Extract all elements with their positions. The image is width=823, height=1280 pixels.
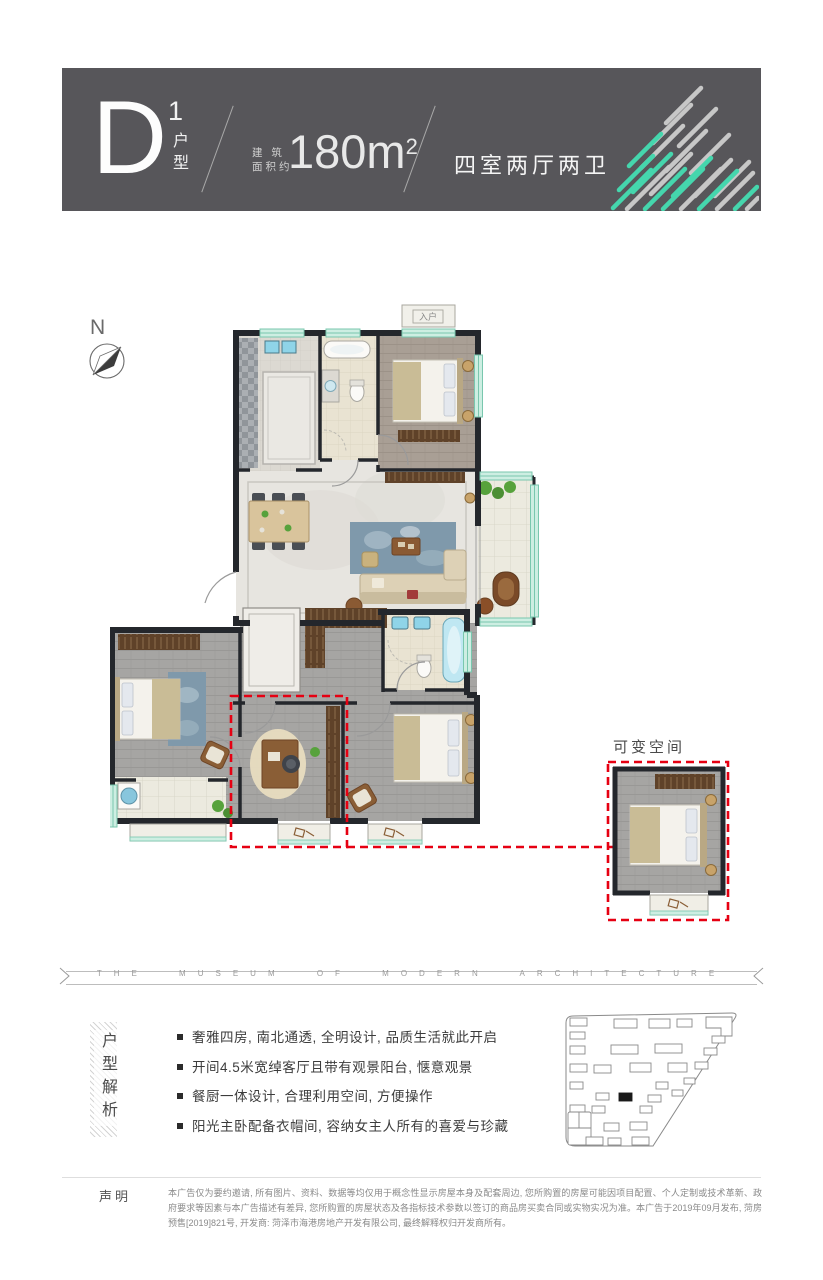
disclaimer-text: 本广告仅为要约邀请, 所有图片、资料、数据等均仅用于概念性显示房屋本身及配套周边… <box>168 1186 762 1231</box>
analysis-title: 户型解析 <box>94 1030 120 1126</box>
variable-space-label: 可变空间 <box>613 739 685 756</box>
bullet-text: 开间4.5米宽绰客厅且带有观景阳台, 惬意观景 <box>192 1060 473 1075</box>
variable-space-plan: 可变空间 <box>608 739 728 920</box>
analysis-bullets: 奢雅四房, 南北通透, 全明设计, 品质生活就此开启 开间4.5米宽绰客厅且带有… <box>177 1026 557 1144</box>
study-bookshelf <box>326 706 340 818</box>
bedroom1-dresser <box>398 430 460 442</box>
area-caption-line1: 建 筑 <box>252 147 285 159</box>
unit-number: 1 <box>168 96 183 127</box>
area-caption-line2: 面积约 <box>252 161 293 173</box>
page: D 1 户型 建 筑面积约 180m2 四室两厅两卫 N <box>0 0 823 1280</box>
area-caption: 建 筑面积约 <box>252 146 293 174</box>
bay-windows <box>130 824 422 844</box>
bullet-square-icon <box>177 1034 183 1040</box>
unit-type-label: 户型 <box>166 132 190 176</box>
site-plan <box>556 1006 764 1156</box>
bullet-square-icon <box>177 1093 183 1099</box>
hall-wardrobe <box>305 608 325 668</box>
floor-plan: 入户 可变空间 <box>110 300 770 950</box>
ribbon-line-bottom <box>66 984 757 985</box>
divider-slash <box>201 106 233 193</box>
unit-letter: D <box>92 86 167 190</box>
bullet-square-icon <box>177 1064 183 1070</box>
header-banner: D 1 户型 建 筑面积约 180m2 四室两厅两卫 <box>62 68 761 211</box>
room-floors <box>112 333 534 821</box>
dining-set <box>249 493 309 550</box>
area-value: 180m2 <box>288 124 418 179</box>
tv-console <box>385 472 465 483</box>
bullet-text: 奢雅四房, 南北通透, 全明设计, 品质生活就此开启 <box>192 1030 498 1045</box>
highlighted-building <box>619 1093 632 1101</box>
master-closet <box>118 634 200 650</box>
room-layout-text: 四室两厅两卫 <box>454 148 610 180</box>
north-label: N <box>90 316 106 340</box>
area-number: 180m <box>288 125 406 178</box>
bullet-text: 阳光主卧配备衣帽间, 容纳女主人所有的喜爱与珍藏 <box>192 1119 509 1134</box>
disclaimer-label: 声明 <box>99 1186 131 1205</box>
entry-label: 入户 <box>419 311 437 322</box>
ribbon-chevron-left-icon <box>59 967 71 985</box>
site-buildings <box>568 1017 732 1145</box>
bullet-item: 奢雅四房, 南北通透, 全明设计, 品质生活就此开启 <box>177 1026 557 1056</box>
bullet-item: 餐厨一体设计, 合理利用空间, 方便操作 <box>177 1085 557 1115</box>
entry-platform: 入户 <box>402 305 455 327</box>
ribbon-banner: THE MUSEUM OF MODERN ARCHITECTURE <box>62 964 761 988</box>
ribbon-chevron-right-icon <box>752 967 764 985</box>
bullet-square-icon <box>177 1123 183 1129</box>
bullet-item: 阳光主卧配备衣帽间, 容纳女主人所有的喜爱与珍藏 <box>177 1115 557 1145</box>
bullet-item: 开间4.5米宽绰客厅且带有观景阳台, 惬意观景 <box>177 1056 557 1086</box>
bullet-text: 餐厨一体设计, 合理利用空间, 方便操作 <box>192 1089 433 1104</box>
ribbon-text: THE MUSEUM OF MODERN ARCHITECTURE <box>62 969 761 978</box>
variable-wardrobe <box>655 774 715 789</box>
diagonal-stripes-decoration <box>609 68 759 211</box>
footer-divider <box>62 1177 761 1178</box>
